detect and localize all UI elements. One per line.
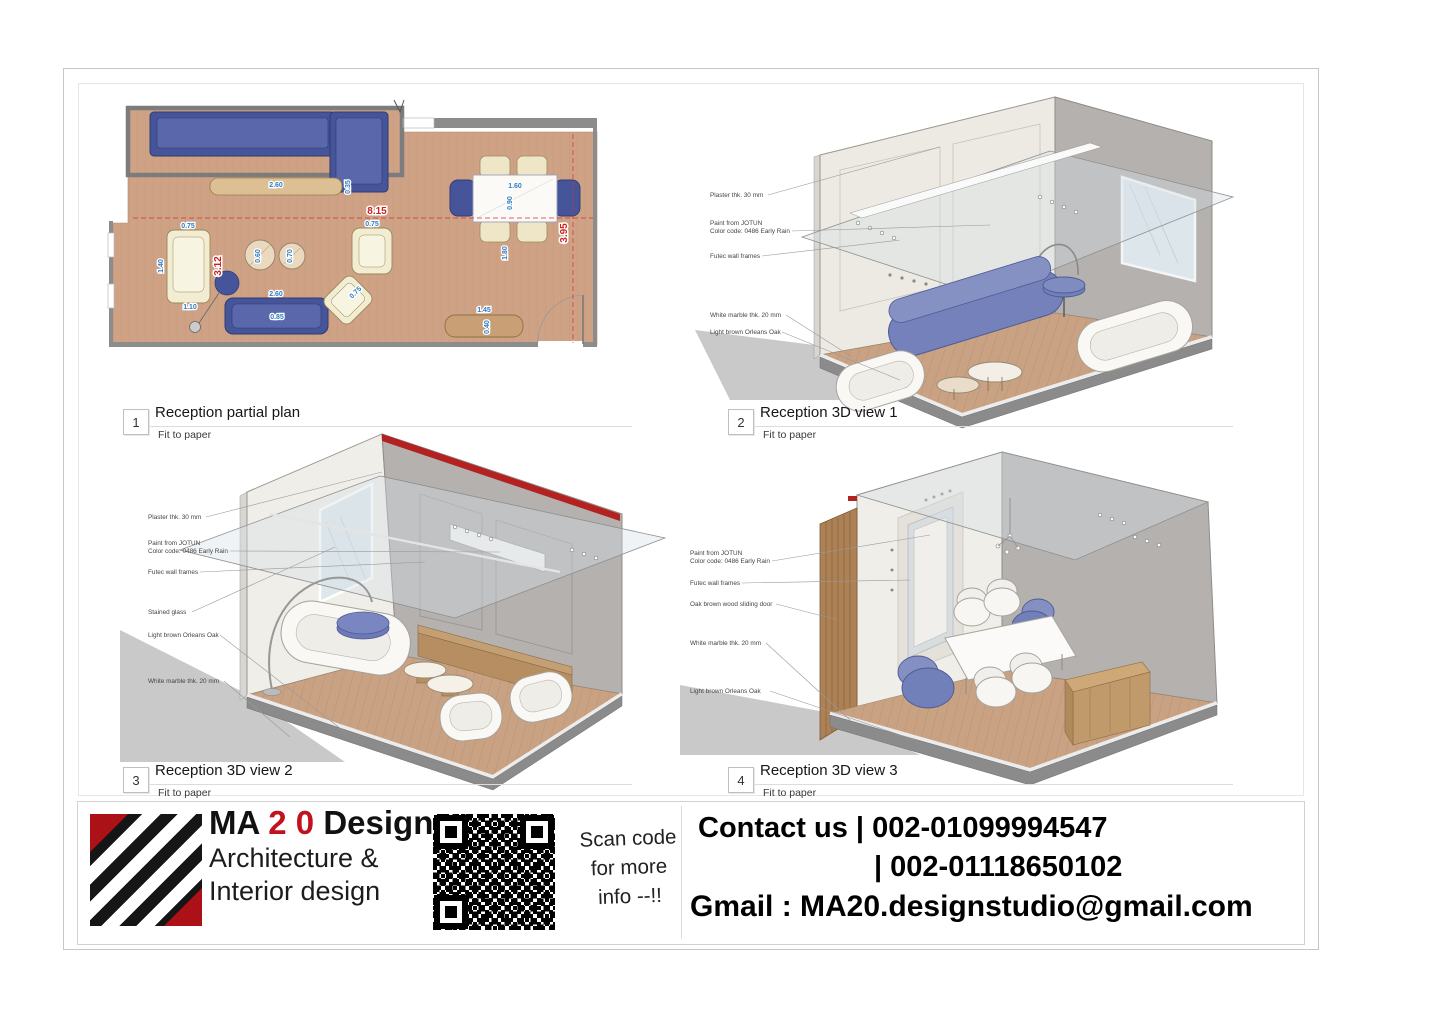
dim-label: 1.40 (158, 259, 165, 273)
view-title-underline (755, 426, 1233, 427)
dim-label: 0.75 (365, 221, 379, 228)
dim-label: 1.45 (477, 307, 491, 314)
view-title-4: Reception 3D view 3 (760, 762, 898, 779)
annotation-text: White marble thk. 20 mm (690, 640, 761, 647)
floor-lamp (190, 322, 201, 333)
annotation-text: Futec wall frames (690, 580, 740, 587)
dim-label: 1.60 (508, 183, 522, 190)
view-title-underline (755, 784, 1233, 785)
view-number-4: 4 (728, 767, 754, 793)
annotation-text: Stained glass (148, 609, 186, 616)
view-number-1: 1 (123, 409, 149, 435)
reception-3d-view-2-svg: Plaster thk. 30 mm Paint from JOTUN Colo… (120, 432, 680, 800)
company-logo (90, 814, 202, 926)
dim-label: 3.12 (213, 256, 224, 276)
view-number-label: 1 (132, 415, 139, 430)
view-number-3: 3 (123, 767, 149, 793)
view-subtitle-4: Fit to paper (763, 787, 816, 799)
dim-label: 0.60 (255, 249, 262, 263)
title-block-divider (681, 806, 682, 939)
annotation-text: Color code: 0486 Early Rain (148, 548, 228, 555)
annotation-text: Plaster thk. 30 mm (710, 192, 763, 199)
annotation-text: White marble thk. 20 mm (148, 678, 219, 685)
dim-label: 1.10 (183, 304, 197, 311)
wall-edge (240, 492, 247, 700)
annotation-text: Color code: 0486 Early Rain (710, 228, 790, 235)
contact-info: Contact us | 002-01099994547 | 002-01118… (690, 808, 1302, 924)
brand-ma: MA (209, 804, 259, 841)
dim-label: 2.60 (269, 291, 283, 298)
view-subtitle-2: Fit to paper (763, 429, 816, 441)
qr-finder-top-right (520, 815, 554, 849)
qr-finder-top-left (434, 815, 468, 849)
dim-label: 8.15 (367, 206, 387, 217)
scan-code-note: Scan code for more info --!! (564, 822, 695, 913)
reception-3d-view-3-svg: Paint from JOTUN Color code: 0486 Early … (680, 440, 1240, 800)
dim-label: 2.60 (269, 182, 283, 189)
view-number-label: 4 (737, 773, 744, 788)
annotation-text: Light brown Orleans Oak (148, 632, 219, 639)
dim-label: 0.85 (270, 314, 284, 321)
annotation-text: Light brown Orleans Oak (690, 688, 761, 695)
brand-name: MA 2 0 Designs (209, 804, 452, 842)
red-beam-mark (848, 496, 857, 501)
dim-label: 0.70 (287, 249, 294, 263)
dim-label: 0.75 (181, 223, 195, 230)
view-number-label: 2 (737, 415, 744, 430)
scan-line-1: Scan code (564, 822, 693, 855)
qr-finder-bottom-left (434, 895, 468, 929)
view-number-label: 3 (132, 773, 139, 788)
annotation-text: Light brown Orleans Oak (710, 329, 781, 336)
title-block: MA 2 0 Designs Architecture & Interior d… (77, 801, 1305, 945)
drawing-sheet-page: 8.15 3.95 3.12 2.60 0.35 0.75 1.40 1.10 … (0, 0, 1440, 1019)
brand-20: 2 0 (268, 804, 314, 841)
brand-tagline-2: Interior design (209, 875, 452, 908)
annotation-text: Paint from JOTUN (710, 220, 763, 227)
view-title-underline (150, 426, 632, 427)
qr-code (433, 814, 555, 930)
dim-label: 1.80 (502, 246, 509, 260)
wood-sliding-door (820, 508, 857, 740)
scan-line-3: info --!! (566, 880, 695, 913)
view-title-underline (150, 784, 632, 785)
reception-3d-view-1-svg: Plaster thk. 30 mm Paint from JOTUN Colo… (690, 85, 1235, 430)
reception-partial-plan-svg: 8.15 3.95 3.12 2.60 0.35 0.75 1.40 1.10 … (105, 98, 605, 358)
annotation-text: Oak brown wood sliding door (690, 601, 773, 608)
annotation-text: White marble thk. 20 mm (710, 312, 781, 319)
view-subtitle-3: Fit to paper (158, 787, 211, 799)
dim-label: 0.90 (507, 196, 514, 210)
dim-label: 0.35 (345, 180, 352, 194)
annotation-text: Futec wall frames (148, 569, 198, 576)
dining-armchair-right (554, 180, 580, 216)
contact-email: Gmail : MA20.designstudio@gmail.com (690, 890, 1302, 924)
annotation-text: Paint from JOTUN (148, 540, 201, 547)
contact-phone-1: Contact us | 002-01099994547 (698, 812, 1302, 845)
lamp-base (263, 689, 281, 696)
scan-line-2: for more (565, 851, 694, 884)
view-title-3: Reception 3D view 2 (155, 762, 293, 779)
blue-pouf (337, 612, 389, 639)
contact-phone-2: | 002-01118650102 (874, 851, 1302, 884)
dim-label: 3.95 (559, 223, 570, 243)
view-title-2: Reception 3D view 1 (760, 404, 898, 421)
dining-armchair-left (450, 180, 476, 216)
dim-label: 0.40 (484, 320, 491, 334)
brand-tagline-1: Architecture & (209, 842, 452, 875)
brand-text: MA 2 0 Designs Architecture & Interior d… (209, 804, 452, 908)
annotation-text: Futec wall frames (710, 253, 760, 260)
view-title-1: Reception partial plan (155, 404, 300, 421)
view-number-2: 2 (728, 409, 754, 435)
wall-edge (814, 155, 820, 359)
annotation-text: Color code: 0486 Early Rain (690, 558, 770, 565)
view-subtitle-1: Fit to paper (158, 429, 211, 441)
annotation-text: Paint from JOTUN (690, 550, 743, 557)
annotation-text: Plaster thk. 30 mm (148, 514, 201, 521)
